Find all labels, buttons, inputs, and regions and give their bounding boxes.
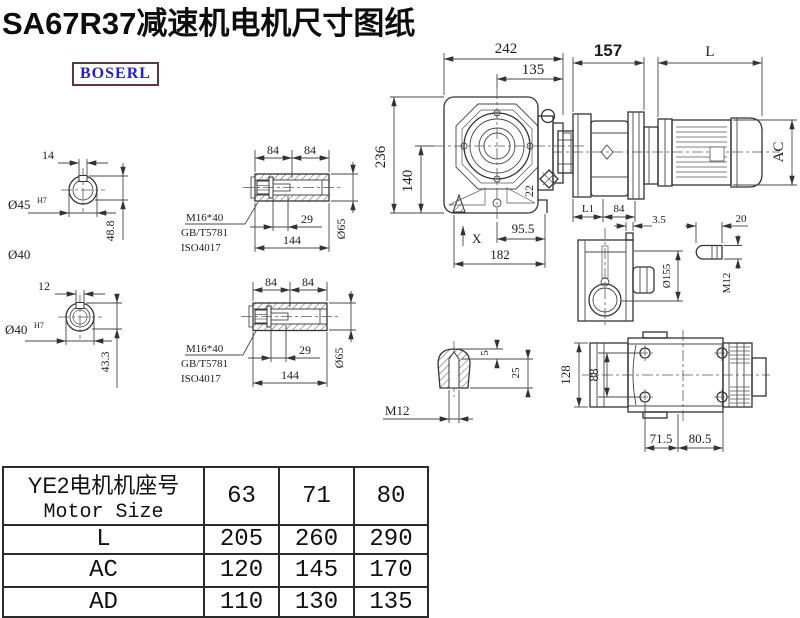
table-row: AC 120 145 170 bbox=[3, 554, 428, 587]
table-cell: 260 bbox=[279, 525, 354, 554]
dim-foot2: 182 bbox=[490, 247, 510, 262]
shaft-diameter-label: Ø40 bbox=[8, 247, 30, 262]
dim-motor-dia: AC bbox=[771, 142, 787, 163]
dim-bore-tolerance: H7 bbox=[37, 196, 47, 205]
terminal-box bbox=[710, 147, 724, 161]
side-view-with-motor: 157 L AC L1 84 bbox=[552, 41, 797, 222]
dim-length: 144 bbox=[283, 233, 301, 247]
dim-l1: L1 bbox=[582, 203, 594, 215]
key-detail: 20 M12 bbox=[685, 213, 748, 293]
row-label: L bbox=[3, 525, 204, 554]
dim-seg2: 84 bbox=[304, 143, 316, 157]
dim-depth: 43.3 bbox=[98, 352, 112, 373]
gearbox-front-view: 22 242 135 236 140 95.5 182 X bbox=[373, 41, 584, 268]
tapped-hole bbox=[449, 352, 459, 388]
dim-motor-length: L bbox=[705, 44, 714, 60]
table-cell: 110 bbox=[204, 587, 279, 617]
drain-plug bbox=[453, 195, 465, 212]
dim-w1: 71.5 bbox=[650, 431, 673, 446]
header-cell: YE2电机机座号 Motor Size bbox=[3, 467, 204, 525]
dim-thread: M12 bbox=[721, 273, 733, 294]
motor-size-table: YE2电机机座号 Motor Size 63 71 80 L 205 260 2… bbox=[2, 466, 429, 618]
col-63: 63 bbox=[204, 467, 279, 525]
dim-bore-tolerance: H7 bbox=[34, 321, 44, 330]
table-row: L 205 260 290 bbox=[3, 525, 428, 554]
dim-outer-dia: Ø65 bbox=[332, 348, 346, 369]
bolt-spec: M16*40 bbox=[186, 212, 224, 224]
dim-seg: 84 bbox=[614, 203, 626, 215]
dim-key-width: 12 bbox=[38, 279, 50, 293]
hollow-shaft-view-2: 84 84 M16*40 GB/T5781 ISO4017 29 144 Ø65 bbox=[181, 275, 356, 387]
dim-outer-dia: Ø65 bbox=[334, 219, 348, 240]
dim-foot1: 95.5 bbox=[512, 221, 535, 236]
dim-half-width: 135 bbox=[522, 62, 545, 78]
dim-gearbox-length: 157 bbox=[594, 41, 622, 60]
dim-depth: 48.8 bbox=[103, 221, 117, 242]
table-cell: 120 bbox=[204, 554, 279, 587]
dim-key-length: 20 bbox=[736, 213, 748, 225]
standard-1: GB/T5781 bbox=[181, 227, 228, 239]
row-label: AD bbox=[3, 587, 204, 617]
ref-x-label: X bbox=[472, 231, 482, 246]
table-cell: 205 bbox=[204, 525, 279, 554]
table-cell: 130 bbox=[279, 587, 354, 617]
dim-key-width: 14 bbox=[42, 148, 54, 162]
dim-w2: 80.5 bbox=[689, 431, 712, 446]
dim-height: 128 bbox=[558, 365, 573, 385]
table-cell: 290 bbox=[354, 525, 428, 554]
standard-2: ISO4017 bbox=[181, 373, 221, 385]
hollow-shaft-view-1: 84 84 M16*40 GB/T5781 ISO4017 29 144 Ø65 bbox=[181, 143, 358, 254]
header-cn: YE2电机机座号 bbox=[4, 468, 203, 500]
standard-1: GB/T5781 bbox=[181, 358, 228, 370]
flange-side-view: 3.5 Ø155 bbox=[578, 214, 683, 326]
dim-center-height: 140 bbox=[400, 170, 416, 193]
dim-length: 144 bbox=[281, 368, 299, 382]
row-label: AC bbox=[3, 554, 204, 587]
dim-thread: M12 bbox=[385, 403, 410, 418]
dim-inset: 29 bbox=[299, 343, 311, 357]
dim-flange-dia: Ø155 bbox=[661, 263, 673, 288]
shaft-bore-detail-1: 14 Ø45 H7 48.8 Ø40 bbox=[8, 148, 128, 262]
dim-bolt-spacing: 88 bbox=[586, 369, 601, 382]
dim-tip: 5 bbox=[479, 350, 491, 356]
table-cell: 145 bbox=[279, 554, 354, 587]
gearbox-top-view: 128 88 71.5 80.5 bbox=[558, 330, 770, 452]
col-71: 71 bbox=[279, 467, 354, 525]
dim-bore: Ø40 bbox=[5, 322, 27, 337]
table-row: AD 110 130 135 bbox=[3, 587, 428, 617]
table-cell: 170 bbox=[354, 554, 428, 587]
standard-2: ISO4017 bbox=[181, 242, 221, 254]
header-en: Motor Size bbox=[4, 501, 203, 524]
keyway bbox=[79, 176, 87, 182]
keyway bbox=[76, 303, 84, 309]
table-cell: 135 bbox=[354, 587, 428, 617]
dim-plug-offset: 22 bbox=[522, 185, 536, 197]
dim-seg1: 84 bbox=[267, 143, 279, 157]
table-header-row: YE2电机机座号 Motor Size 63 71 80 bbox=[3, 467, 428, 525]
dim-bore: Ø45 bbox=[8, 197, 30, 212]
shaft-bore-detail-2: 12 Ø40 H7 43.3 bbox=[5, 279, 122, 388]
bolt-spec: M16*40 bbox=[186, 343, 224, 355]
dim-width: 242 bbox=[495, 41, 518, 57]
dim-inset: 29 bbox=[301, 212, 313, 226]
dim-depth: 25 bbox=[510, 367, 522, 379]
motor-end-cap bbox=[731, 118, 762, 187]
dim-seg1: 84 bbox=[265, 275, 277, 289]
dim-seg2: 84 bbox=[302, 275, 314, 289]
dim-step: 3.5 bbox=[652, 214, 666, 226]
dim-height: 236 bbox=[373, 145, 389, 168]
col-80: 80 bbox=[354, 467, 428, 525]
plug-detail: 5 25 M12 bbox=[383, 341, 533, 423]
